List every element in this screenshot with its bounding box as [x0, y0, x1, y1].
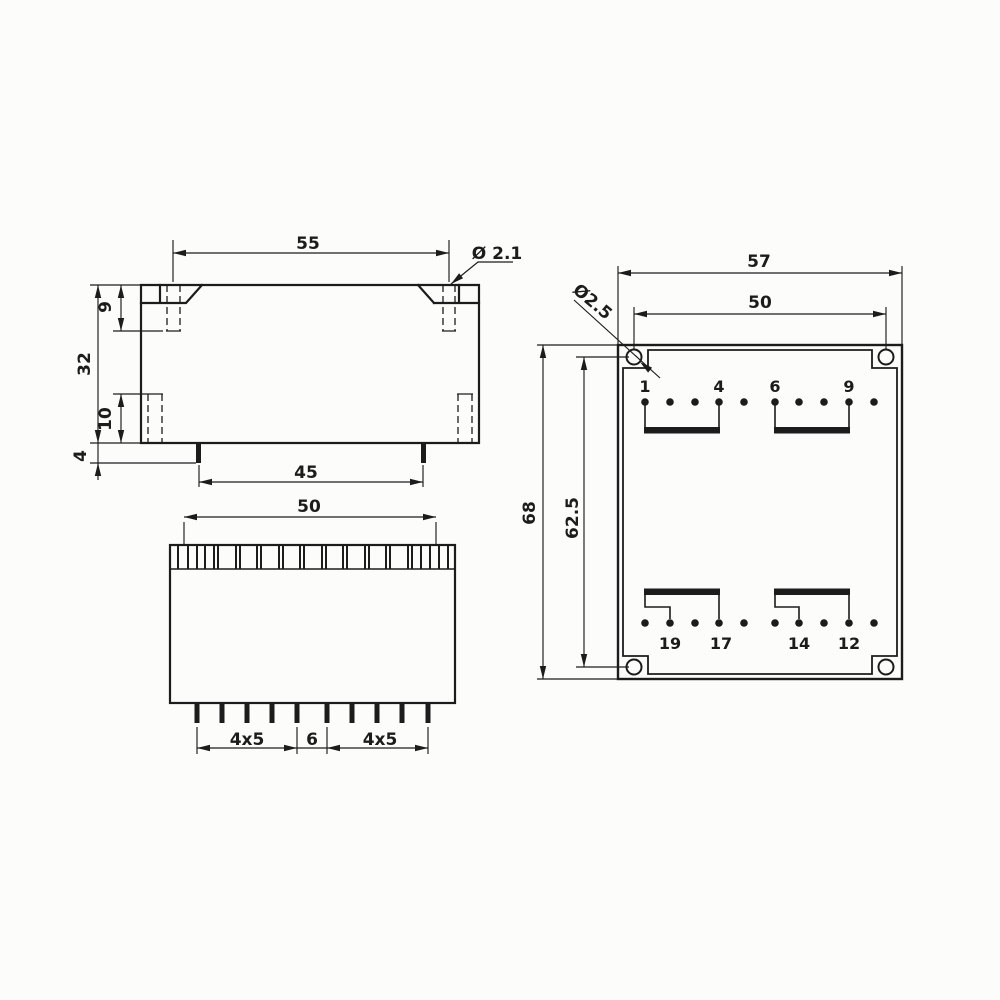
pin-dot — [820, 398, 828, 406]
front-view-pin — [350, 703, 355, 723]
winding-bar-bottom-right — [774, 589, 850, 596]
bottom-view: 1 4 6 9 19 17 14 12 57 50 Ø2.5 68 62.5 — [520, 252, 902, 679]
pin-label-6: 6 — [769, 377, 780, 396]
dim-57-label: 57 — [747, 252, 771, 272]
pin-dot — [666, 619, 674, 627]
winding-bar-bottom-left — [644, 589, 720, 596]
front-view-pin — [245, 703, 250, 723]
pin-label-9: 9 — [843, 377, 854, 396]
pin-dot — [740, 619, 748, 627]
side-view-left-flange — [141, 285, 202, 303]
pin-dot — [771, 398, 779, 406]
front-view-pin — [375, 703, 380, 723]
front-view-pin — [270, 703, 275, 723]
pin-label-19: 19 — [659, 634, 681, 653]
pin-dot — [845, 619, 853, 627]
hole-diameter-2-1-label: Ø 2.1 — [472, 244, 523, 264]
drawing-page: 55 Ø 2.1 32 9 10 4 45 50 4x5 6 4x5 — [0, 0, 1000, 1000]
pin-gap-label: 6 — [306, 730, 318, 750]
side-view-hole-closers — [166, 331, 473, 394]
pin-dots-top-row — [641, 398, 878, 406]
pin-dot — [666, 398, 674, 406]
dim-68-label: 68 — [520, 501, 540, 525]
front-view: 50 4x5 6 4x5 — [170, 497, 455, 754]
dim-10-label: 10 — [96, 407, 116, 431]
winding-connectors-bottom — [645, 595, 849, 619]
pin-pitch-right-label: 4x5 — [363, 730, 398, 750]
front-view-cooling-fins — [178, 545, 448, 569]
bottom-dim-50-label: 50 — [748, 293, 772, 313]
winding-connectors-top — [645, 404, 849, 427]
side-view-right-flange — [418, 285, 479, 303]
front-view-pin — [220, 703, 225, 723]
dim-32-label: 32 — [75, 352, 95, 376]
front-view-pin — [295, 703, 300, 723]
winding-bar-top-right — [774, 427, 850, 434]
pin-label-12: 12 — [838, 634, 860, 653]
pin-dot — [641, 619, 649, 627]
bottom-view-inner-outline — [623, 350, 897, 674]
side-view-dimension-lines — [90, 240, 513, 487]
pin-label-4: 4 — [713, 377, 724, 396]
side-view-body-outline — [141, 285, 479, 443]
pin-label-1: 1 — [639, 377, 650, 396]
engineering-drawing: 55 Ø 2.1 32 9 10 4 45 50 4x5 6 4x5 — [0, 0, 1000, 1000]
mounting-hole-bottom-right — [879, 660, 894, 675]
pin-dot — [870, 398, 878, 406]
side-view: 55 Ø 2.1 32 9 10 4 45 — [71, 234, 522, 487]
dim-9-label: 9 — [96, 301, 116, 313]
pin-label-14: 14 — [788, 634, 810, 653]
pin-dot — [691, 619, 699, 627]
front-view-pin — [400, 703, 405, 723]
side-view-pin-left — [196, 443, 201, 463]
front-view-pin — [426, 703, 431, 723]
mounting-hole-top-right — [879, 350, 894, 365]
pin-dot — [641, 398, 649, 406]
pin-dot — [795, 619, 803, 627]
pin-dots-bottom-row — [641, 619, 878, 627]
winding-bar-top-left — [644, 427, 720, 434]
dim-55-label: 55 — [296, 234, 320, 254]
pin-dot — [870, 619, 878, 627]
dim-62-5-label: 62.5 — [563, 497, 583, 539]
front-view-pin — [325, 703, 330, 723]
front-dim-50-label: 50 — [297, 497, 321, 517]
side-view-pin-right — [421, 443, 426, 463]
pin-dot — [715, 398, 723, 406]
dim-45-label: 45 — [294, 463, 318, 483]
pin-dot — [740, 398, 748, 406]
pin-dot — [771, 619, 779, 627]
pin-dot — [820, 619, 828, 627]
bottom-view-arrowheads — [540, 270, 902, 679]
pin-dot — [845, 398, 853, 406]
pin-dot — [691, 398, 699, 406]
pin-pitch-left-label: 4x5 — [230, 730, 265, 750]
front-view-pin — [195, 703, 200, 723]
front-view-pins — [195, 703, 431, 723]
pin-label-17: 17 — [710, 634, 732, 653]
pin-dot — [795, 398, 803, 406]
bottom-view-outer-outline — [618, 345, 902, 679]
pin-dot — [715, 619, 723, 627]
dim-4-label: 4 — [71, 450, 91, 462]
side-view-hidden-holes — [148, 285, 472, 443]
